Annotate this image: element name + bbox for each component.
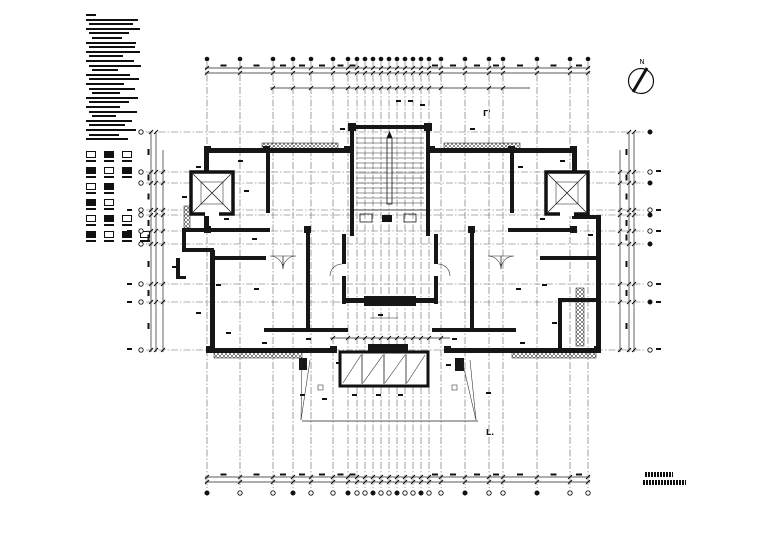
elevator-shaft-right xyxy=(546,172,588,216)
elevator-shaft-left xyxy=(191,172,233,216)
north-arrow: N xyxy=(629,58,654,94)
grid-lines-horizontal xyxy=(146,132,646,350)
entrance-bay xyxy=(340,352,428,386)
section-mark-bottom: L. xyxy=(486,428,494,437)
grid-bubbles xyxy=(139,57,652,495)
title-text-line xyxy=(643,480,686,485)
north-label: N xyxy=(639,58,644,66)
section-mark-top: Γ' xyxy=(483,109,491,118)
columns xyxy=(204,123,601,353)
title-text-line xyxy=(645,472,673,477)
drawing-sheet: Γ' L. N xyxy=(0,0,760,533)
floor-plan-drawing: Γ' L. N xyxy=(0,0,760,533)
